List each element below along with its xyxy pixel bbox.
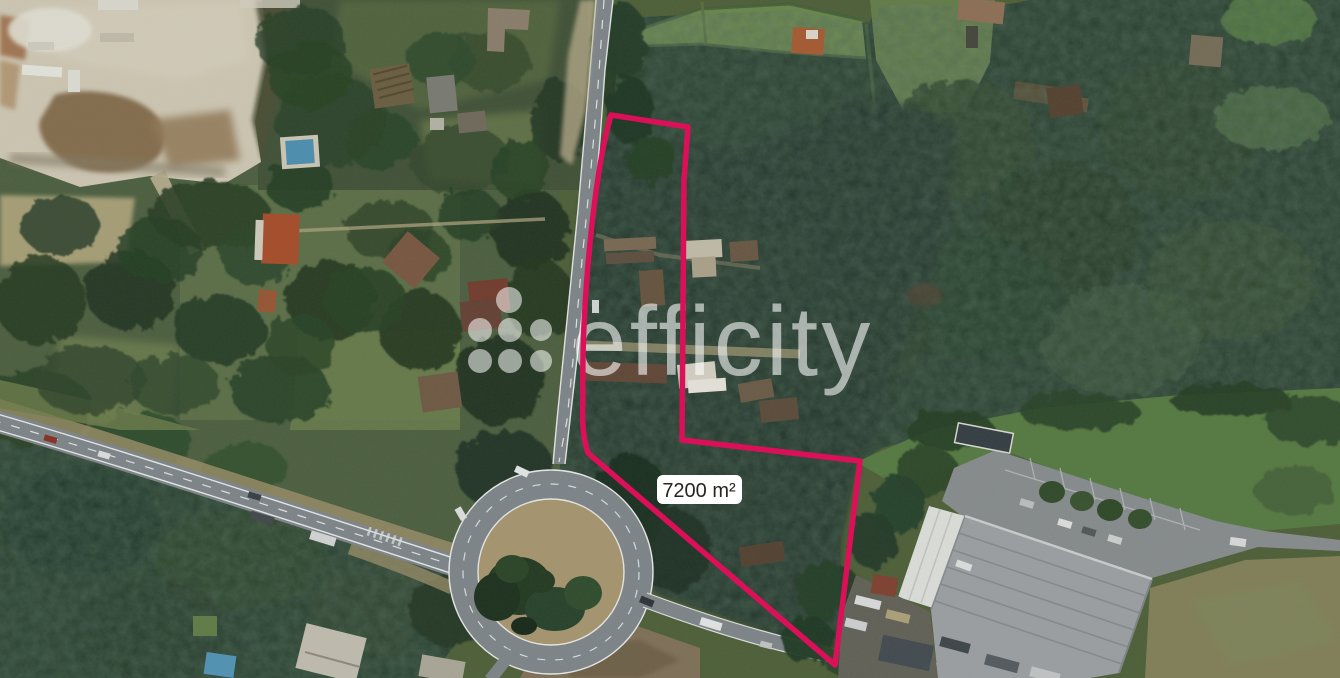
svg-text:efficity: efficity	[572, 286, 874, 396]
svg-text:7200 m²: 7200 m²	[662, 480, 736, 502]
